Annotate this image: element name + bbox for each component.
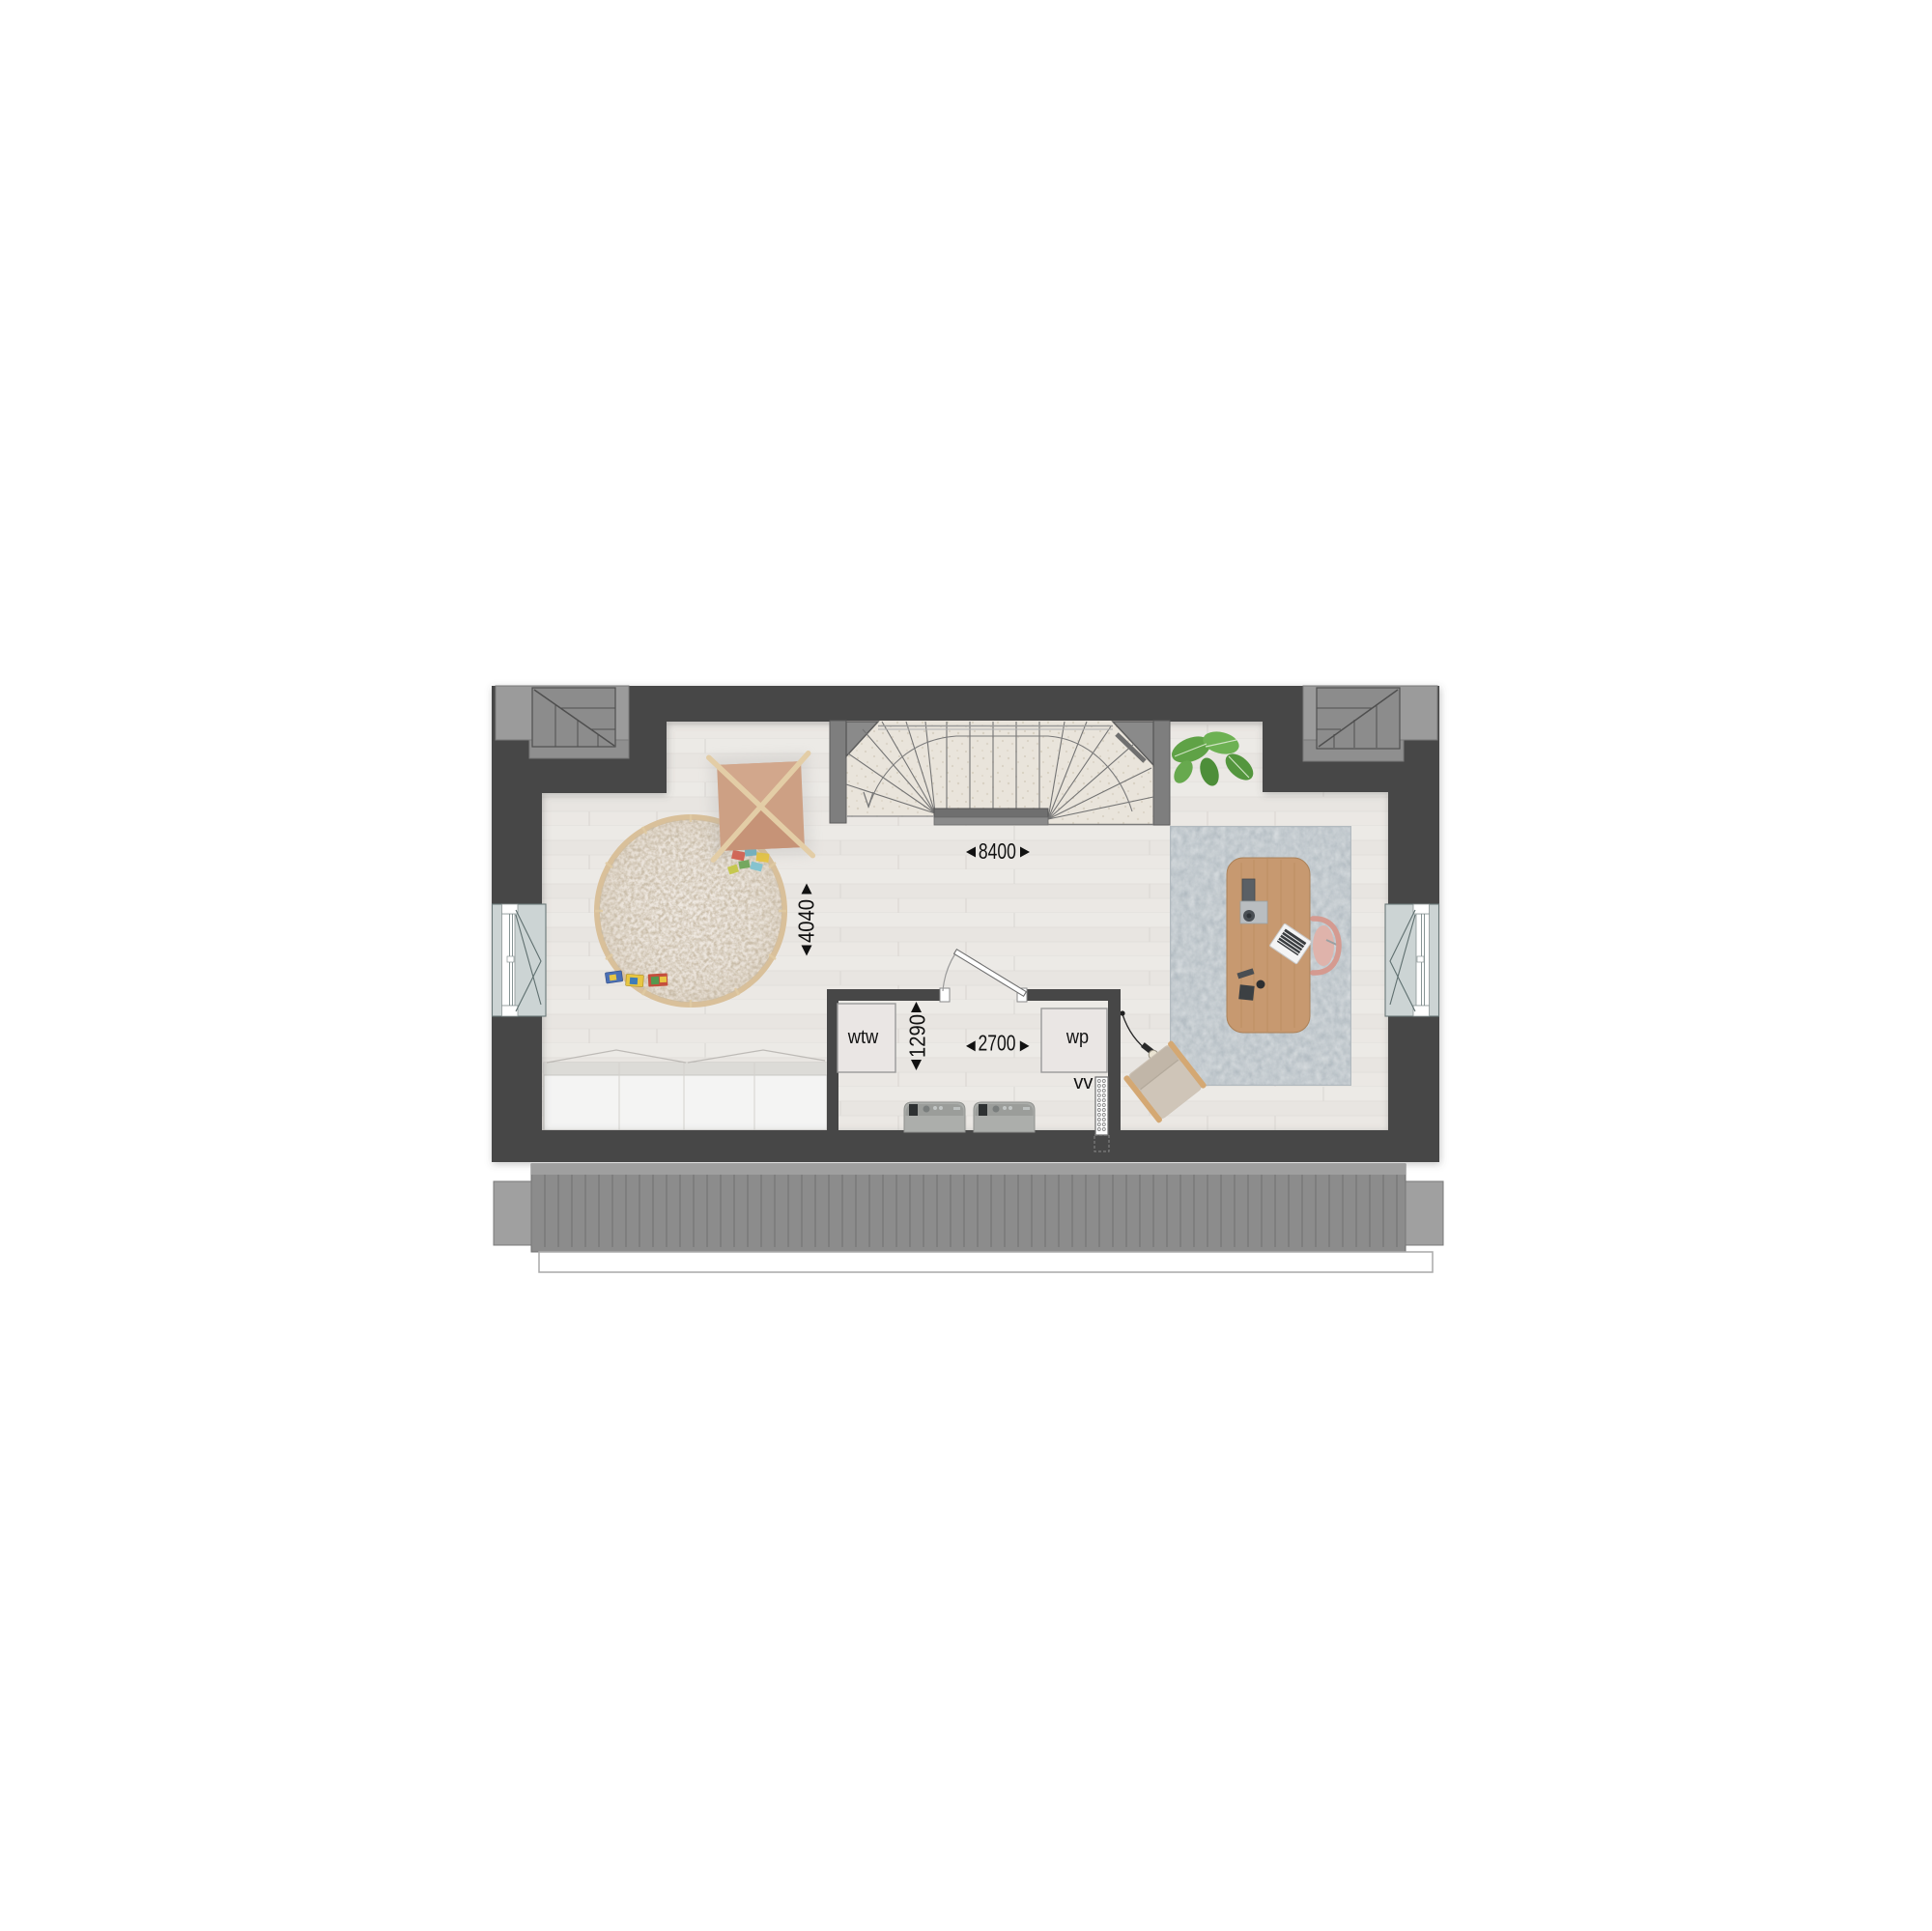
svg-text:4040: 4040	[794, 899, 819, 943]
svg-text:wtw: wtw	[847, 1027, 879, 1048]
svg-text:vv: vv	[1073, 1072, 1093, 1093]
svg-text:8400: 8400	[979, 838, 1016, 864]
svg-text:1290: 1290	[905, 1014, 930, 1058]
svg-text:wp: wp	[1065, 1027, 1089, 1048]
svg-text:2700: 2700	[979, 1031, 1016, 1056]
